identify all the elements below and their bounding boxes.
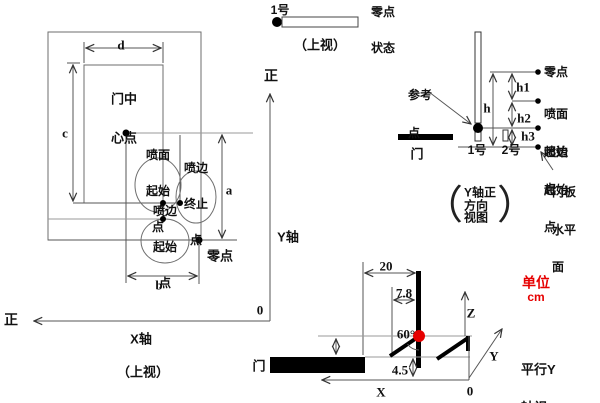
edge-start-side-line1: 喷边	[544, 146, 568, 159]
side-caption-line3: 视图	[464, 212, 488, 225]
ref-point-line2: 点	[408, 127, 432, 140]
iso-view-lines	[270, 262, 502, 380]
door-plane-line1: 门板	[552, 186, 576, 199]
dim-h2-label: h2	[517, 112, 531, 125]
y-axis-label: Y轴	[277, 231, 299, 244]
iso-y-label: Y	[489, 350, 498, 363]
angle-60-label: 60°	[397, 328, 415, 341]
top-view-caption-left: （上视）	[117, 366, 169, 379]
ref-point-dot	[473, 123, 483, 133]
top-view-caption-middle: （上视）	[294, 39, 346, 52]
door-plane-line2: 水平	[552, 224, 576, 237]
dim-78-label: 7.8	[396, 287, 412, 300]
iso-origin-label: 0	[467, 385, 474, 398]
edge-end-dot	[177, 200, 183, 206]
edge-end-line3: 点	[184, 234, 208, 246]
gun-rod-iso	[416, 271, 421, 368]
side-view-caption-text: Y轴正 方向 视图	[464, 187, 496, 225]
edge-start-line2: 起始	[153, 241, 177, 253]
gun1-bar	[282, 17, 358, 27]
ref-point-label: 参考 点	[408, 64, 432, 152]
gun2-tip	[503, 130, 508, 141]
unit-value-label: cm	[527, 291, 544, 303]
face-start-dot-side	[535, 98, 541, 104]
dim-20-label: 20	[380, 260, 393, 273]
origin-label-left: 0	[257, 304, 264, 317]
parallel-view-label: 平行Y 轴视 角	[521, 339, 556, 403]
caption-paren-open: （	[423, 186, 463, 226]
gun1-dot	[272, 17, 282, 27]
zero-status-line2: 状态	[371, 42, 395, 54]
caption-paren-close: ）	[497, 186, 537, 226]
face-start-side-line1: 喷面	[544, 108, 568, 121]
x-positive-label: 正	[4, 314, 18, 327]
side-view-caption: （ Y轴正 方向 视图 ）	[423, 160, 537, 239]
door-center-label-line2: 心点	[111, 132, 137, 145]
gun-top-view-shapes	[272, 17, 358, 27]
edge-end-label: 喷边 终止 点	[184, 138, 208, 258]
unit-title-label: 单位	[522, 277, 550, 290]
zero-dot	[535, 69, 541, 75]
iso-z-label: Z	[467, 307, 476, 320]
door-plane-line3: 面	[552, 261, 576, 274]
dim-45-label: 4.5	[392, 364, 408, 377]
gun1-label-side: 1号	[468, 144, 487, 156]
iso-x-label: X	[376, 386, 385, 399]
gun1-label-top: 1号	[271, 4, 290, 16]
edge-start-line1: 喷边	[153, 205, 177, 217]
side-caption-line1: Y轴正	[464, 187, 496, 200]
tilted-gun-2	[437, 338, 468, 359]
door-plane-dot	[535, 144, 541, 150]
dim-d-label: d	[117, 39, 124, 52]
door-center-label-line1: 门中	[111, 93, 137, 106]
face-start-line1: 喷面	[146, 149, 170, 161]
dim-h1-label: h1	[516, 81, 530, 94]
x-axis-label: X轴	[130, 333, 152, 346]
door-label-side: 门	[410, 148, 423, 161]
edge-start-line3: 点	[153, 277, 177, 289]
edge-end-line1: 喷边	[184, 162, 208, 174]
edge-start-label: 喷边 起始 点	[153, 181, 177, 301]
gun2-label-side: 2号	[502, 144, 521, 156]
gun1-rod	[475, 32, 481, 123]
ref-point-arrow	[429, 92, 471, 124]
door-center-label: 门中 心点	[111, 67, 137, 158]
zero-status-line1: 零点	[371, 6, 395, 18]
door-bar-bottom	[270, 357, 365, 373]
gun1-tip	[475, 132, 481, 141]
door-plane-label: 门板 水平 面	[552, 161, 576, 286]
dim-c-label: c	[62, 127, 68, 140]
zero-label-side: 零点	[544, 66, 568, 79]
zero-point-label: 零点	[207, 250, 233, 263]
edge-end-line2: 终止	[184, 198, 208, 210]
dim-a-label: a	[226, 184, 233, 197]
parallel-view-line1: 平行Y	[521, 364, 556, 377]
edge-start-dot-side	[535, 125, 541, 131]
dim-h3-label: h3	[521, 130, 535, 143]
dim-h-label: h	[483, 102, 490, 115]
diagram-page: d c a b 门中 心点 喷面 起始 点 喷边 终止 点 喷边 起始 点 零点…	[0, 0, 600, 403]
y-positive-label: 正	[264, 70, 278, 83]
zero-status-label: 零点 状态	[371, 0, 395, 66]
ref-point-line1: 参考	[408, 89, 432, 102]
door-label-bottom: 门	[252, 360, 265, 373]
